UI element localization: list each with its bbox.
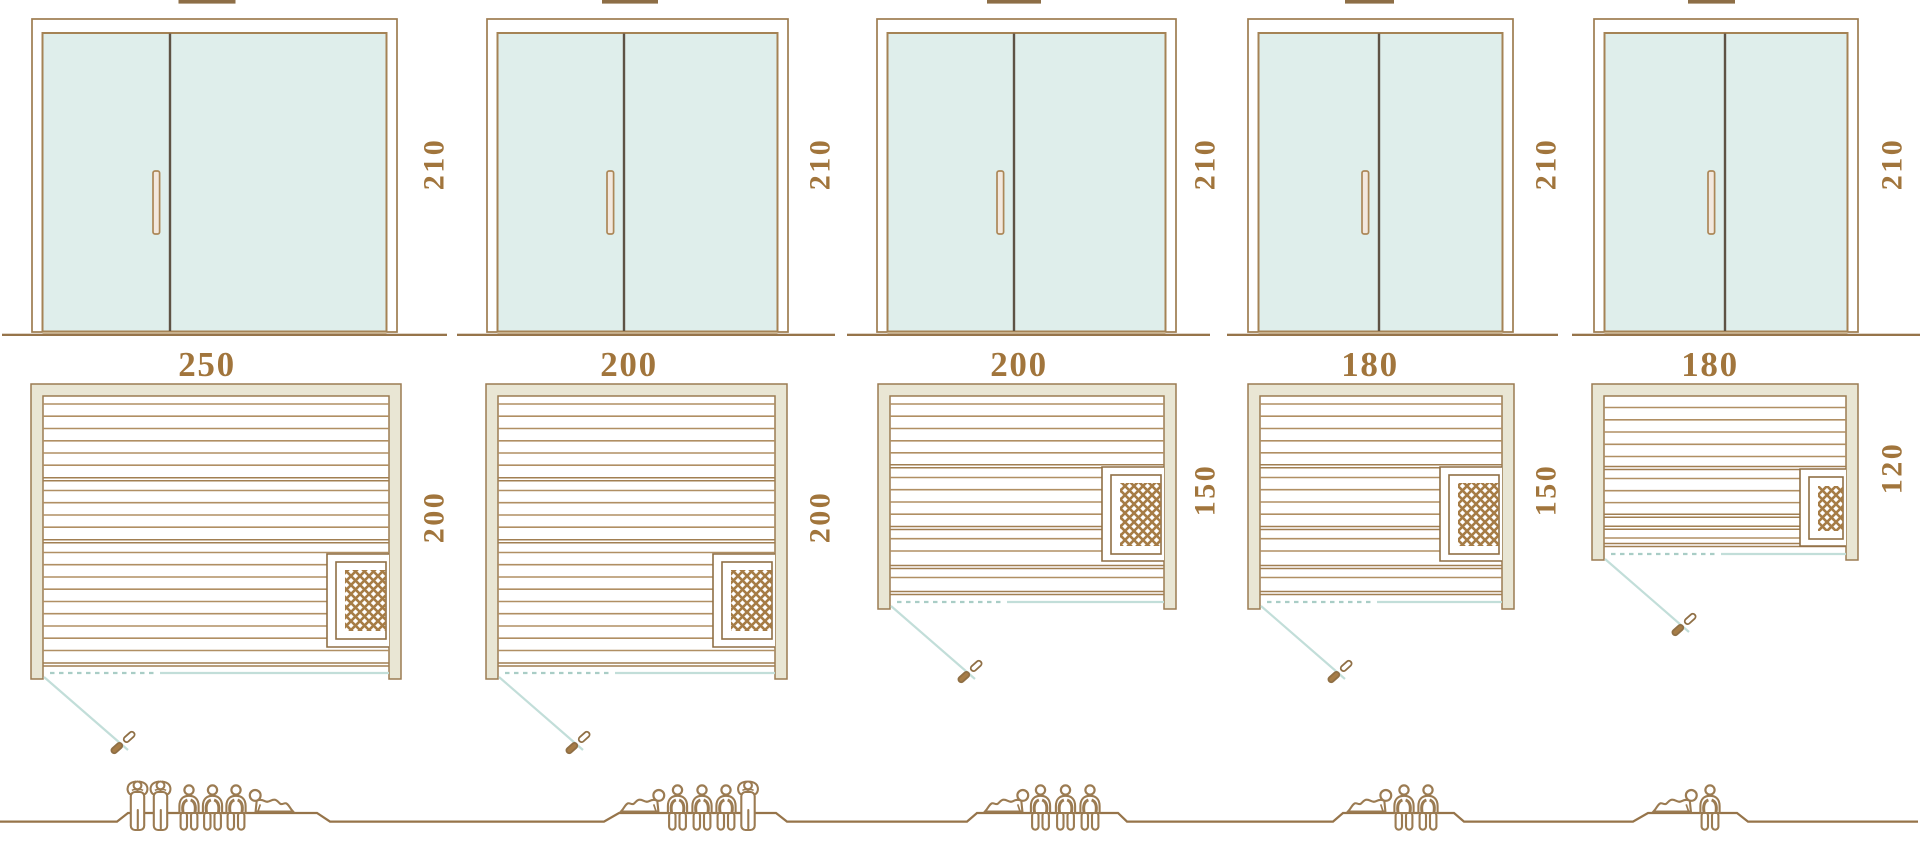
svg-text:250: 250 xyxy=(178,345,236,384)
svg-text:150: 150 xyxy=(1529,464,1562,517)
svg-text:210: 210 xyxy=(803,138,836,191)
svg-text:210: 210 xyxy=(1529,138,1562,191)
svg-text:210: 210 xyxy=(1188,138,1221,191)
svg-text:180: 180 xyxy=(1341,345,1399,384)
svg-text:150: 150 xyxy=(1188,464,1221,517)
svg-text:210: 210 xyxy=(417,138,450,191)
svg-text:120: 120 xyxy=(1875,442,1908,495)
svg-text:200: 200 xyxy=(600,345,658,384)
svg-text:180: 180 xyxy=(1681,345,1739,384)
svg-text:200: 200 xyxy=(803,491,836,544)
svg-text:210: 210 xyxy=(1875,138,1908,191)
svg-text:200: 200 xyxy=(417,491,450,544)
svg-text:200: 200 xyxy=(990,345,1048,384)
